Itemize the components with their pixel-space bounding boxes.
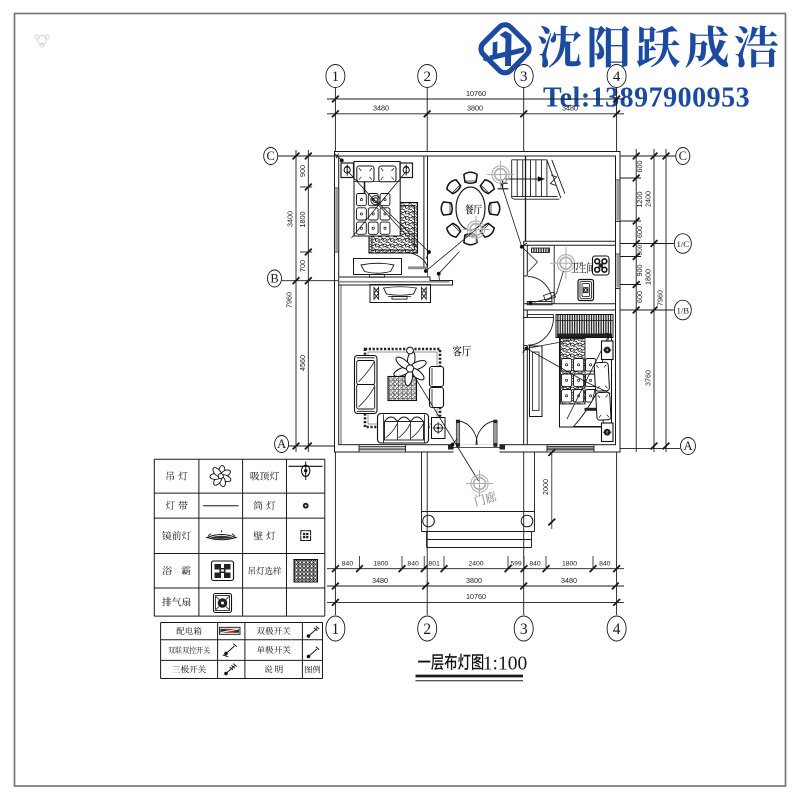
svg-text:10760: 10760 <box>466 89 486 98</box>
svg-text:900: 900 <box>635 265 644 277</box>
svg-text:1/B: 1/B <box>676 305 689 315</box>
svg-text:600: 600 <box>635 161 644 173</box>
svg-text:1800: 1800 <box>644 269 653 285</box>
svg-text:4: 4 <box>613 621 621 638</box>
svg-text:10760: 10760 <box>466 592 486 601</box>
svg-text:A: A <box>277 437 286 451</box>
svg-text:3480: 3480 <box>373 104 389 113</box>
svg-text:C: C <box>267 149 275 163</box>
svg-text:1: 1 <box>332 621 340 638</box>
svg-text:C: C <box>679 149 687 163</box>
svg-text:4: 4 <box>613 69 621 85</box>
svg-text:2400: 2400 <box>468 561 483 568</box>
svg-text:1:100: 1:100 <box>483 654 527 675</box>
svg-text:1: 1 <box>332 69 340 85</box>
svg-text:1200: 1200 <box>635 192 644 208</box>
svg-text:3: 3 <box>520 621 528 638</box>
svg-text:3480: 3480 <box>372 576 388 585</box>
svg-text:840: 840 <box>599 561 611 568</box>
svg-text:700: 700 <box>298 260 307 272</box>
svg-text:7960: 7960 <box>656 290 665 306</box>
svg-text:1800: 1800 <box>373 561 388 568</box>
svg-text:2000: 2000 <box>541 479 550 495</box>
svg-text:900: 900 <box>298 165 307 177</box>
svg-text:3: 3 <box>520 69 528 85</box>
svg-text:600: 600 <box>635 226 644 238</box>
svg-text:1/C: 1/C <box>676 239 689 249</box>
svg-text:840: 840 <box>407 561 419 568</box>
svg-text:B: B <box>270 272 278 286</box>
svg-text:840: 840 <box>529 561 541 568</box>
svg-text:3400: 3400 <box>286 211 295 227</box>
svg-text:600: 600 <box>637 244 644 255</box>
svg-text:3800: 3800 <box>466 576 482 585</box>
svg-text:599: 599 <box>510 561 522 568</box>
svg-text:840: 840 <box>342 561 354 568</box>
svg-text:801: 801 <box>428 561 440 568</box>
svg-text:3480: 3480 <box>561 576 577 585</box>
svg-text:1800: 1800 <box>298 212 307 228</box>
svg-text:600: 600 <box>635 291 644 303</box>
svg-text:2: 2 <box>423 621 431 638</box>
svg-text:4560: 4560 <box>298 355 307 371</box>
svg-text:3760: 3760 <box>644 370 653 386</box>
svg-text:3800: 3800 <box>467 104 483 113</box>
svg-text:1800: 1800 <box>562 561 577 568</box>
svg-text:2: 2 <box>423 69 431 85</box>
svg-text:3480: 3480 <box>562 104 578 113</box>
svg-text:2400: 2400 <box>644 191 653 207</box>
svg-text:A: A <box>683 439 692 453</box>
svg-text:7960: 7960 <box>284 292 293 308</box>
